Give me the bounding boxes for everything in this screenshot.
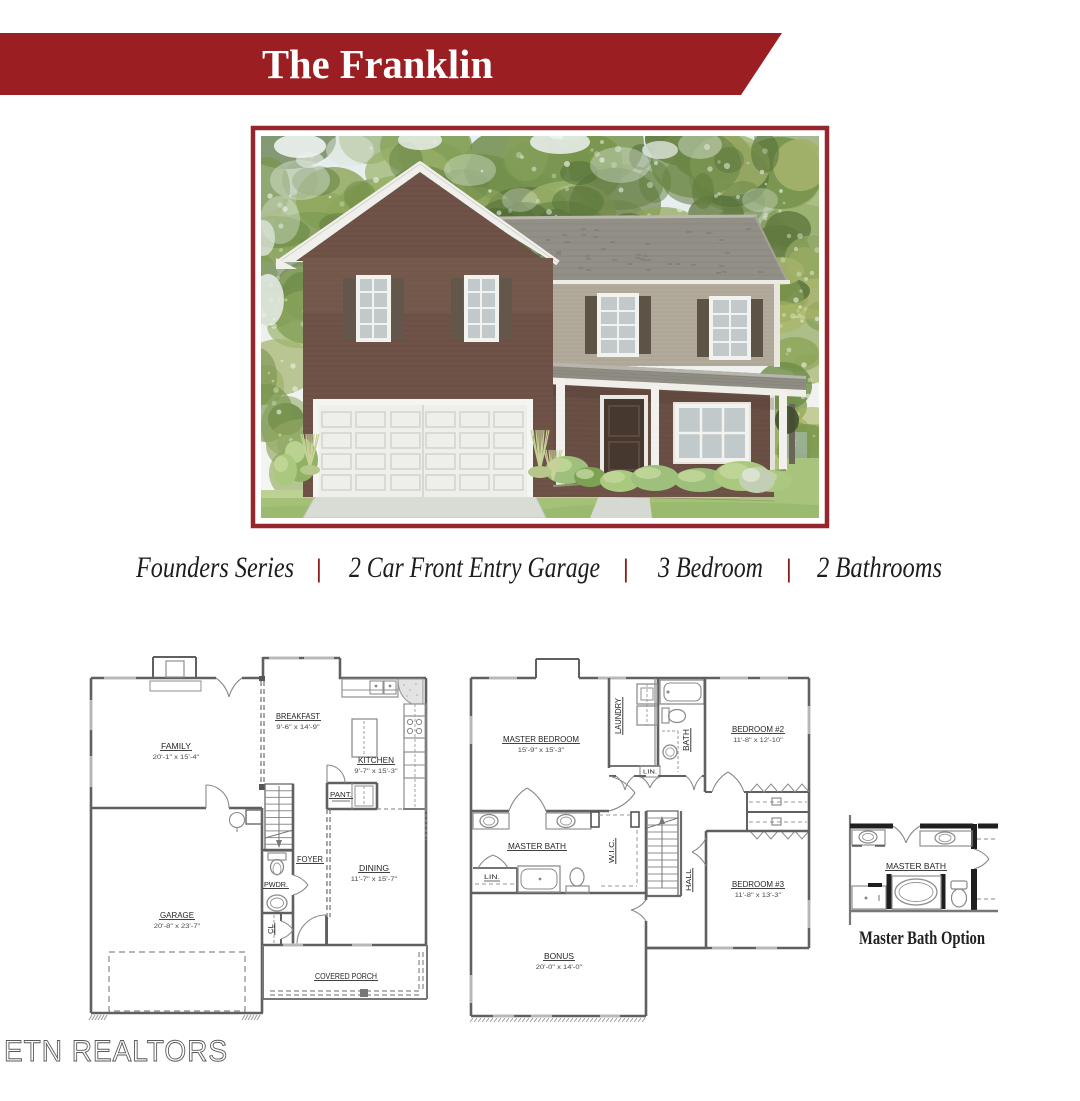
svg-text:11'-8" x 12'-10": 11'-8" x 12'-10": [733, 737, 783, 744]
svg-text:9'-7" x 15'-3": 9'-7" x 15'-3": [354, 768, 397, 775]
svg-text:2 Car Front Entry Garage: 2 Car Front Entry Garage: [349, 551, 600, 584]
svg-text:|: |: [623, 554, 629, 583]
svg-text:2 Bathrooms: 2 Bathrooms: [817, 551, 942, 584]
svg-text:Master Bath Option: Master Bath Option: [859, 929, 986, 949]
svg-text:PWDR.: PWDR.: [264, 880, 288, 889]
svg-text:KITCHEN: KITCHEN: [358, 755, 394, 765]
svg-text:20'-1" x 15'-4": 20'-1" x 15'-4": [153, 754, 200, 761]
svg-text:BEDROOM #3: BEDROOM #3: [732, 879, 784, 889]
svg-text:20'-0" x 14'-0": 20'-0" x 14'-0": [536, 964, 583, 971]
svg-text:LAUNDRY: LAUNDRY: [614, 697, 623, 734]
svg-text:11'-7" x 15'-7": 11'-7" x 15'-7": [351, 876, 398, 883]
svg-text:|: |: [786, 554, 792, 583]
svg-text:BONUS: BONUS: [544, 951, 574, 961]
svg-text:CL: CL: [268, 924, 275, 934]
svg-text:15'-9" x 15'-3": 15'-9" x 15'-3": [518, 747, 565, 754]
svg-text:LIN.: LIN.: [484, 874, 500, 881]
svg-text:ETN REALTORS: ETN REALTORS: [4, 1035, 228, 1068]
svg-text:COVERED PORCH: COVERED PORCH: [315, 971, 377, 981]
svg-text:3 Bedroom: 3 Bedroom: [657, 551, 763, 584]
svg-text:MASTER BEDROOM: MASTER BEDROOM: [503, 734, 579, 744]
svg-text:BEDROOM #2: BEDROOM #2: [732, 724, 784, 734]
svg-text:11'-8" x 13'-3": 11'-8" x 13'-3": [735, 892, 782, 899]
svg-text:GARAGE: GARAGE: [160, 910, 194, 920]
svg-text:PANT.: PANT.: [330, 790, 352, 799]
svg-text:Founders Series: Founders Series: [135, 551, 294, 584]
svg-text:LIN.: LIN.: [643, 770, 658, 776]
svg-text:MASTER BATH: MASTER BATH: [886, 861, 946, 871]
svg-text:HALL: HALL: [684, 869, 693, 891]
svg-text:20'-8" x 23'-7": 20'-8" x 23'-7": [154, 923, 201, 930]
svg-text:DINING: DINING: [359, 863, 389, 873]
svg-text:FAMILY: FAMILY: [161, 741, 191, 751]
svg-text:W.I.C.: W.I.C.: [607, 839, 616, 863]
svg-text:The Franklin: The Franklin: [262, 41, 493, 87]
svg-text:BATH: BATH: [682, 729, 691, 751]
svg-text:|: |: [316, 554, 322, 583]
svg-text:MASTER BATH: MASTER BATH: [508, 841, 566, 851]
svg-text:9'-6" x 14'-9": 9'-6" x 14'-9": [276, 724, 319, 731]
svg-text:FOYER: FOYER: [297, 854, 323, 864]
svg-text:BREAKFAST: BREAKFAST: [276, 711, 320, 721]
